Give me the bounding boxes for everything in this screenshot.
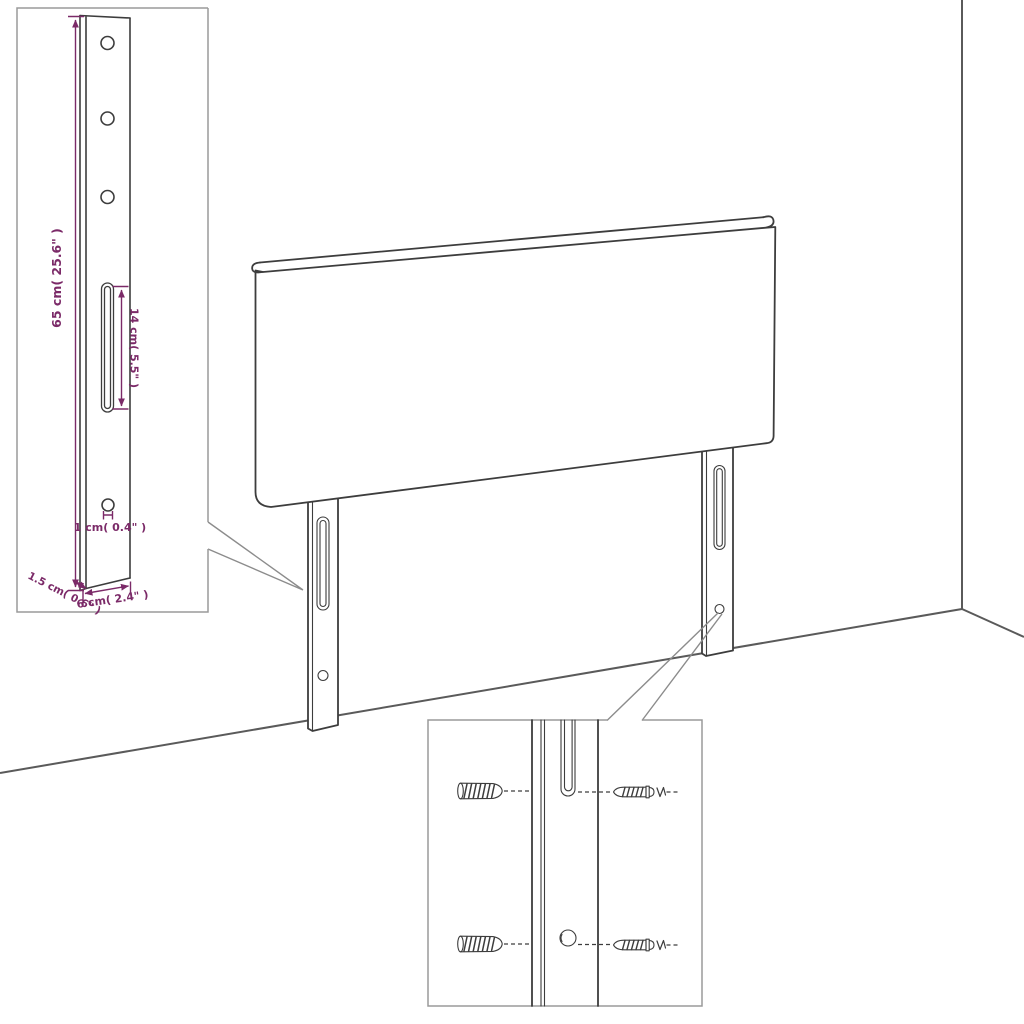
dim-label-bracket-height: 65 cm( 25.6" ) — [49, 228, 64, 328]
dim-label-bracket-width: 6 cm( 2.4" ) — [76, 588, 150, 611]
bracket-hole-3 — [101, 191, 114, 204]
dim-line-1cm — [104, 511, 113, 520]
wall-plug-bottom — [458, 936, 503, 952]
bracket-hole-1 — [101, 37, 114, 50]
bracket-slot — [102, 283, 114, 412]
left-leg — [308, 467, 338, 731]
bracket-hole-4 — [102, 499, 114, 511]
floor-line-right — [962, 609, 1024, 637]
right-leg — [702, 427, 733, 656]
screw-bottom — [614, 939, 666, 951]
screw-top — [614, 786, 666, 798]
dim-line-1-5cm — [76, 582, 86, 589]
dim-label-hole-diameter: 1 cm( 0.4" ) — [74, 521, 146, 534]
alignment-dashed-lines — [504, 791, 680, 945]
dim-label-bracket-thickness: 1.5 cm( 0.6" ) — [26, 570, 103, 617]
callout-bracket-inset-to-left-leg — [208, 522, 303, 590]
diagram-canvas: 65 cm( 25.6" ) 14 cm( 5.5" ) 1 cm( 0.4" … — [0, 0, 1024, 1024]
dim-label-slot-length: 14 cm( 5.5" ) — [128, 308, 141, 388]
dimension-lines — [68, 17, 131, 602]
mounting-slot — [561, 720, 575, 796]
headboard-panel — [252, 216, 775, 507]
assembly-diagram: 65 cm( 25.6" ) 14 cm( 5.5" ) 1 cm( 0.4" … — [0, 0, 1024, 1024]
headboard-top-roll-right-curl — [764, 216, 774, 227]
wall-plug-top — [458, 783, 503, 799]
callout-lines — [208, 522, 722, 721]
bracket-detail-inset: 65 cm( 25.6" ) 14 cm( 5.5" ) 1 cm( 0.4" … — [17, 8, 208, 617]
mounting-hole — [560, 930, 576, 946]
bracket-hole-2 — [101, 112, 114, 125]
mounting-detail-inset — [428, 720, 702, 1006]
floor-line-left — [0, 609, 962, 773]
